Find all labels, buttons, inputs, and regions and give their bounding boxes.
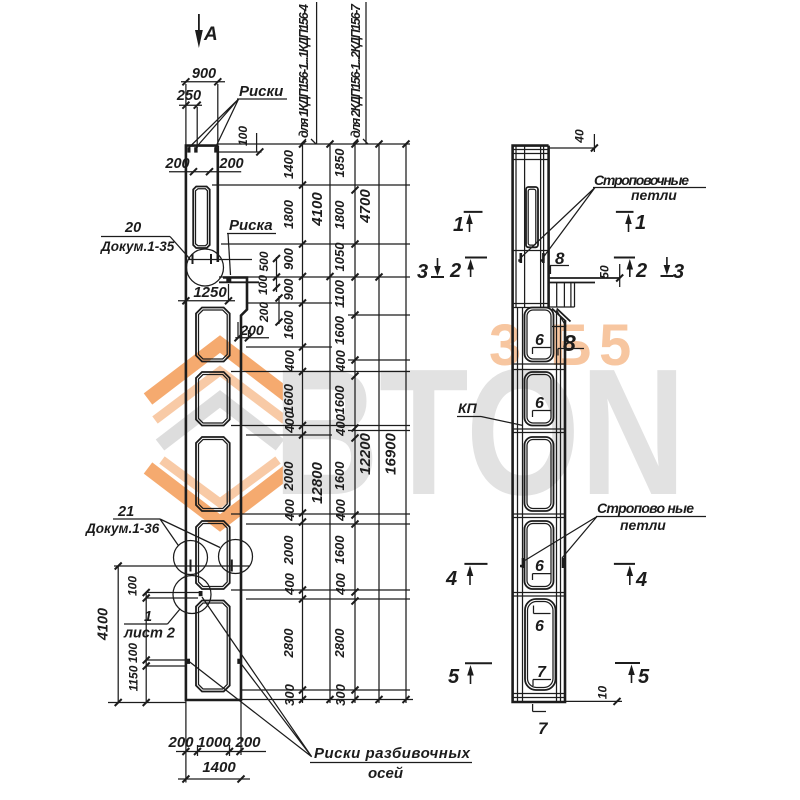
svg-text:200: 200 [164,156,189,172]
svg-text:400: 400 [333,349,348,372]
svg-text:8: 8 [563,330,576,356]
svg-text:2: 2 [635,260,647,282]
svg-text:1: 1 [144,609,152,625]
svg-text:Риска: Риска [229,217,273,234]
svg-text:1600: 1600 [281,383,296,413]
svg-text:7: 7 [537,664,547,681]
svg-text:1600: 1600 [281,310,296,340]
svg-text:100: 100 [126,643,140,663]
svg-text:16900: 16900 [383,432,400,474]
svg-text:2800: 2800 [332,628,347,659]
svg-text:3: 3 [417,261,428,283]
svg-text:300: 300 [333,683,348,705]
svg-text:100: 100 [256,275,270,295]
svg-text:для 2КДП156-1...2КДП156-7: для 2КДП156-1...2КДП156-7 [349,3,363,138]
svg-text:1400: 1400 [281,149,296,179]
svg-text:400: 400 [333,498,348,521]
svg-text:1000: 1000 [197,734,231,751]
svg-text:100: 100 [236,126,250,146]
svg-text:10: 10 [596,686,610,700]
svg-text:осей: осей [368,765,403,782]
svg-text:Строповочные: Строповочные [594,172,689,188]
svg-text:40: 40 [573,129,587,144]
svg-text:400: 400 [333,572,348,595]
svg-text:200: 200 [167,734,194,751]
svg-text:4: 4 [445,568,457,590]
svg-text:500: 500 [257,251,271,271]
svg-text:1850: 1850 [332,148,347,178]
svg-text:12800: 12800 [309,461,326,503]
svg-text:5: 5 [448,666,460,688]
svg-text:400: 400 [282,498,297,521]
svg-text:Докум.1-35: Докум.1-35 [100,239,175,254]
svg-text:1600: 1600 [332,315,347,345]
svg-text:1100: 1100 [332,279,347,308]
svg-text:4100: 4100 [96,608,112,641]
svg-text:2000: 2000 [281,535,296,566]
svg-text:1800: 1800 [332,200,347,230]
svg-text:1: 1 [453,214,464,236]
svg-text:20: 20 [124,220,141,236]
svg-text:4: 4 [635,569,647,591]
svg-text:1250: 1250 [193,284,227,301]
svg-text:200: 200 [218,156,243,172]
svg-text:400: 400 [333,413,348,436]
svg-text:400: 400 [282,572,297,595]
svg-text:для 1КДП156-1...1КДП156-4: для 1КДП156-1...1КДП156-4 [297,4,311,138]
svg-text:900: 900 [281,278,296,300]
svg-text:Риски: Риски [239,83,283,100]
svg-text:900: 900 [192,66,216,82]
svg-text:1: 1 [635,212,646,234]
svg-text:3: 3 [673,261,684,283]
svg-text:1600: 1600 [332,535,347,565]
svg-text:6: 6 [535,618,544,635]
svg-text:900: 900 [281,247,296,269]
svg-text:12200: 12200 [357,432,374,474]
svg-text:1800: 1800 [281,199,296,229]
svg-text:5: 5 [638,666,650,688]
svg-text:6: 6 [535,395,544,412]
svg-text:200: 200 [257,302,271,323]
svg-text:2800: 2800 [281,628,296,659]
svg-text:2000: 2000 [281,461,296,492]
svg-text:400: 400 [282,349,297,372]
svg-text:1600: 1600 [332,461,347,491]
svg-text:петли: петли [631,187,677,203]
svg-text:Докум.1-36: Докум.1-36 [85,521,160,536]
svg-text:3: 3 [489,313,521,378]
svg-text:А: А [203,24,218,45]
svg-text:1400: 1400 [202,759,236,776]
svg-text:100: 100 [126,576,140,596]
svg-text:Риски разбивочных: Риски разбивочных [314,745,471,762]
svg-text:2: 2 [449,260,461,282]
svg-text:6: 6 [535,332,544,349]
svg-text:1050: 1050 [332,242,347,272]
svg-text:Стропово ные: Стропово ные [597,500,694,516]
svg-text:4700: 4700 [357,189,374,224]
svg-text:1150: 1150 [127,665,141,691]
svg-text:КП: КП [458,400,478,416]
svg-text:лист 2: лист 2 [123,626,175,642]
svg-text:6: 6 [535,558,544,575]
svg-text:300: 300 [282,683,297,705]
svg-text:петли: петли [620,517,666,533]
svg-text:400: 400 [282,410,297,433]
svg-text:50: 50 [598,265,612,279]
svg-text:4100: 4100 [309,192,326,227]
svg-text:21: 21 [117,504,134,520]
svg-text:1600: 1600 [332,385,347,415]
svg-text:5: 5 [599,313,631,378]
svg-text:200: 200 [234,734,261,751]
svg-text:7: 7 [538,719,549,738]
